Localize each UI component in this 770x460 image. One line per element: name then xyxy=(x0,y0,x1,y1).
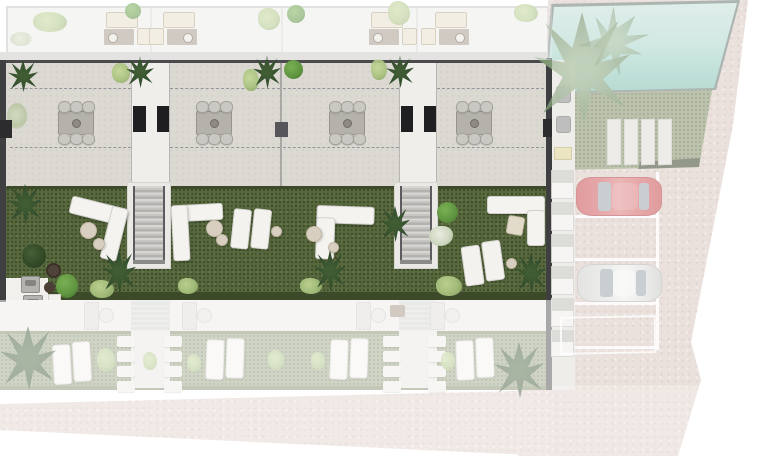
garden-sofa-group xyxy=(313,201,377,259)
lawn-slab xyxy=(624,119,638,165)
car-roof xyxy=(612,183,638,210)
glass-door-line xyxy=(283,147,399,148)
stepping-stone xyxy=(428,336,446,347)
boundary-wall-left xyxy=(0,60,6,302)
storage-shed xyxy=(551,266,574,295)
terrace-plant xyxy=(243,69,259,91)
ground-terrace-strip xyxy=(0,300,548,334)
sun-lounger xyxy=(349,338,368,379)
roof-lounge-set xyxy=(423,12,469,46)
garden-pouf xyxy=(328,242,339,253)
boundary-wall-pillar xyxy=(0,120,12,138)
garden-corner-sofa xyxy=(171,205,191,262)
glass-door-line xyxy=(10,88,131,89)
lawn-slab xyxy=(607,119,621,165)
ground-plant xyxy=(268,350,284,370)
staircase-landing xyxy=(133,260,165,264)
dining-set xyxy=(185,100,241,144)
ground-sofa xyxy=(182,302,197,330)
bistro-stool xyxy=(44,282,55,293)
sun-lounger-pair xyxy=(329,337,370,380)
ground-round-table xyxy=(371,308,386,323)
roof-rug xyxy=(104,29,134,45)
car-rear-window xyxy=(636,270,646,296)
sun-lounger xyxy=(52,344,72,385)
ground-plant xyxy=(187,354,201,372)
dining-chair xyxy=(353,133,366,145)
roof-coffee-table xyxy=(183,33,193,43)
stepping-stone xyxy=(428,381,446,392)
sun-lounger xyxy=(475,337,494,378)
ground-plant xyxy=(143,352,157,370)
storage-shed xyxy=(551,234,574,263)
garden-pouf xyxy=(93,238,105,250)
dining-table xyxy=(58,111,94,135)
storage-shed xyxy=(551,170,574,199)
garden-pouf xyxy=(80,222,97,239)
roof-plant xyxy=(10,32,32,46)
sun-lounger-pair xyxy=(460,239,508,288)
glass-door-line xyxy=(437,88,544,89)
front-walkway xyxy=(0,384,552,460)
car-windshield xyxy=(600,269,613,297)
roof-coffee-table xyxy=(455,33,465,43)
glass-door-line xyxy=(170,88,280,89)
white-car xyxy=(577,264,662,302)
ground-round-table xyxy=(445,308,460,323)
dining-chair xyxy=(82,101,95,113)
car-roof xyxy=(613,270,635,296)
dining-chair xyxy=(82,133,95,145)
garden-bottom-hedge xyxy=(6,292,548,300)
ground-sofa xyxy=(84,302,99,330)
terrace-plant xyxy=(371,59,387,80)
parking-line xyxy=(575,302,658,305)
stepping-stone xyxy=(164,366,182,377)
terrace-plant xyxy=(112,63,130,83)
glass-door-line xyxy=(283,88,399,89)
roof-sofa xyxy=(163,12,195,28)
sun-lounger xyxy=(72,341,92,382)
ground-round-table xyxy=(99,308,114,323)
roof-coffee-table xyxy=(373,33,383,43)
parking-line xyxy=(575,258,658,261)
ground-plant xyxy=(97,348,115,372)
sun-lounger xyxy=(230,208,252,250)
roof-armchair xyxy=(402,28,417,45)
roof-plant xyxy=(287,5,305,23)
glass-door-line xyxy=(10,147,131,148)
sun-lounger-pair xyxy=(230,206,274,254)
garden-staircase xyxy=(133,186,165,262)
entrance-door xyxy=(133,106,146,132)
roof-armchair xyxy=(421,28,436,45)
terrace-tree xyxy=(284,60,303,79)
ground-sofa xyxy=(356,302,371,330)
sun-lounger xyxy=(329,339,348,380)
red-car xyxy=(576,177,662,216)
parking-space-outline xyxy=(560,315,657,355)
garden-plant xyxy=(436,276,462,296)
sun-lounger xyxy=(481,240,505,282)
ground-plant xyxy=(311,352,325,370)
dining-chair xyxy=(353,101,366,113)
lawn-slab xyxy=(641,119,655,165)
sun-lounger xyxy=(225,338,244,379)
roof-armchair xyxy=(149,28,164,45)
dining-chair xyxy=(220,101,233,113)
storage-shed xyxy=(551,202,574,231)
roof-plant xyxy=(258,8,280,30)
sun-lounger xyxy=(250,208,272,250)
stepping-stone xyxy=(383,366,401,377)
garden-pouf xyxy=(216,234,228,246)
sun-lounger xyxy=(455,340,474,381)
dining-table xyxy=(196,111,232,135)
stepping-stone xyxy=(117,351,135,362)
sun-lounger-pair xyxy=(52,341,94,385)
garden-side-table xyxy=(271,226,282,237)
stepping-stone xyxy=(117,366,135,377)
garden-side-table xyxy=(506,258,517,269)
bistro-table xyxy=(46,263,61,278)
roof-rug xyxy=(369,29,399,45)
entrance-door xyxy=(157,106,169,132)
dining-set xyxy=(47,100,103,144)
sun-lounger-pair xyxy=(205,337,246,380)
ground-round-table xyxy=(197,308,212,323)
dining-chair xyxy=(220,133,233,145)
path-utility-box xyxy=(556,116,571,133)
roofline-shadow xyxy=(0,52,548,60)
stepping-stone xyxy=(383,351,401,362)
dining-set xyxy=(318,100,374,144)
dining-chair xyxy=(480,133,493,145)
car-rear-window xyxy=(639,183,649,210)
glass-door-line xyxy=(437,147,544,148)
roof-plant xyxy=(388,1,410,25)
stepping-stone xyxy=(383,381,401,392)
glass-door-line xyxy=(170,147,280,148)
entrance-door xyxy=(424,106,436,132)
garden-plant xyxy=(178,278,198,294)
party-wall-pillar xyxy=(275,122,288,137)
dining-table xyxy=(329,111,365,135)
garden-armchair xyxy=(505,215,525,237)
roof-plant xyxy=(514,4,538,22)
stepping-stone xyxy=(117,381,135,392)
dining-table xyxy=(456,111,492,135)
garden-top-hedge xyxy=(6,186,548,189)
outdoor-kitchen-unit xyxy=(21,276,40,293)
dining-set xyxy=(445,100,501,144)
ground-desk xyxy=(390,305,405,317)
ground-hedge xyxy=(0,331,548,334)
roof-sofa xyxy=(435,12,467,28)
dining-chair xyxy=(480,101,493,113)
roof-rug xyxy=(167,29,197,45)
path-crate xyxy=(554,147,572,160)
garden-tree xyxy=(437,202,458,223)
roof-plant xyxy=(33,12,67,32)
garden-bush xyxy=(22,244,46,268)
stepping-stone xyxy=(164,336,182,347)
ground-hedge xyxy=(0,386,548,390)
entrance-door xyxy=(401,106,413,132)
garden-corner-sofa xyxy=(527,210,545,246)
ground-sofa xyxy=(430,302,445,330)
ground-plant xyxy=(441,352,455,370)
sun-lounger xyxy=(205,339,224,380)
stepping-stone xyxy=(164,351,182,362)
garden-pouf xyxy=(306,226,322,242)
staircase-landing xyxy=(400,260,432,264)
lawn-slab xyxy=(658,119,672,165)
roof-coffee-table xyxy=(108,33,118,43)
site-plan: Top-down 3D architectural site plan of f… xyxy=(0,0,770,460)
stepping-stone xyxy=(117,336,135,347)
car-windshield xyxy=(598,182,611,211)
sun-lounger-pair xyxy=(455,337,496,380)
roof-rug xyxy=(439,29,469,45)
roof-lounge-set xyxy=(151,12,197,46)
stepping-stone xyxy=(164,381,182,392)
roof-plant xyxy=(125,3,141,19)
stepping-stone xyxy=(383,336,401,347)
